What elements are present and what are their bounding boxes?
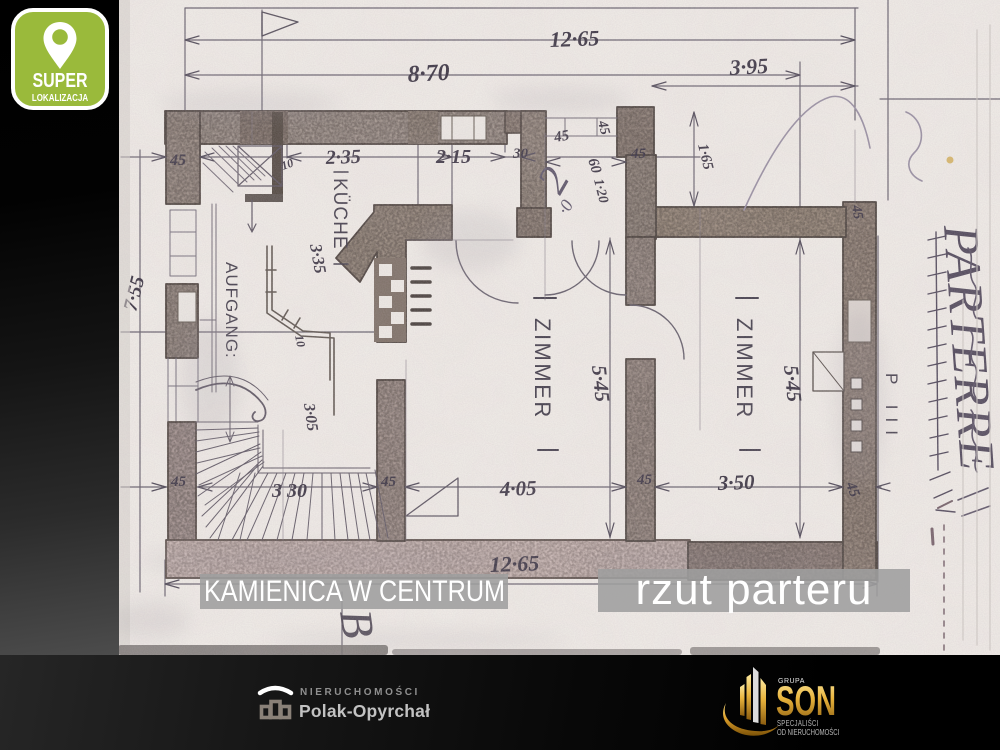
svg-text:SPECJALIŚCI: SPECJALIŚCI (777, 718, 819, 728)
svg-text:SON: SON (776, 677, 836, 724)
svg-text:OD NIERUCHOMOŚCI: OD NIERUCHOMOŚCI (777, 727, 839, 737)
